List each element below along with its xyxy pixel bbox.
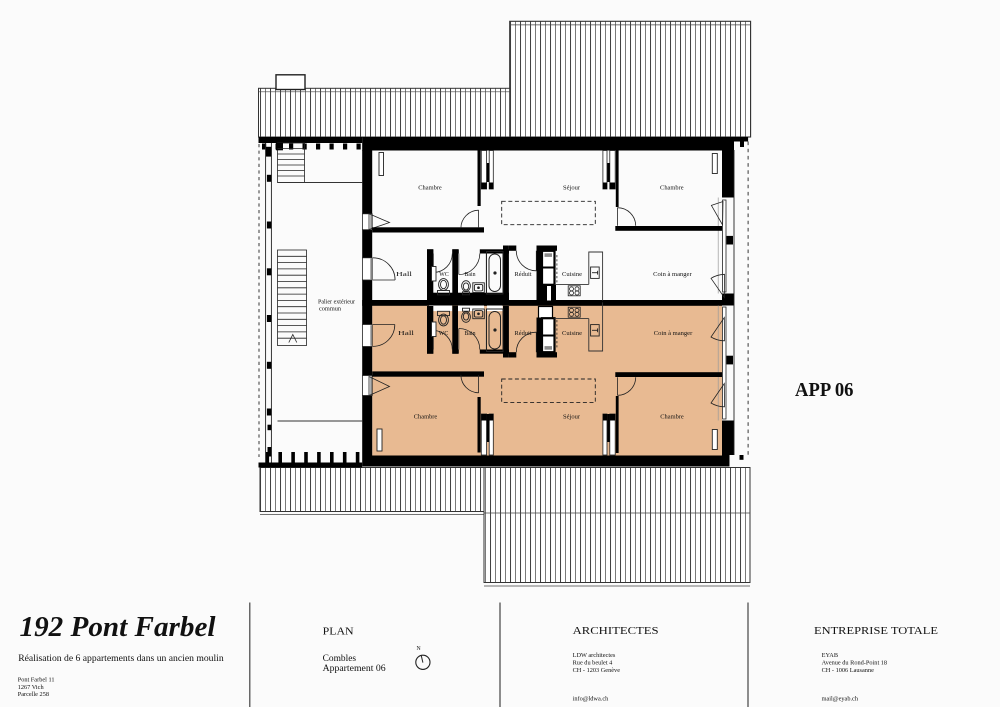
svg-text:CH - 1203 Genève: CH - 1203 Genève (573, 667, 621, 674)
svg-text:Réalisation de 6 appartements: Réalisation de 6 appartements dans un an… (18, 653, 224, 664)
svg-text:Réduit: Réduit (515, 271, 532, 278)
svg-text:LDW architectes: LDW architectes (573, 652, 616, 659)
svg-text:WC: WC (439, 330, 449, 337)
svg-text:Rue du beulet 4: Rue du beulet 4 (573, 660, 614, 667)
svg-text:ENTREPRISE TOTALE: ENTREPRISE TOTALE (814, 626, 938, 637)
svg-text:192 Pont Farbel: 192 Pont Farbel (20, 612, 216, 643)
svg-text:Séjour: Séjour (563, 414, 581, 421)
svg-text:Chambre: Chambre (660, 185, 684, 192)
svg-text:WC: WC (439, 271, 449, 278)
svg-text:Bain: Bain (465, 271, 477, 278)
svg-text:Coin à manger: Coin à manger (653, 271, 692, 278)
svg-text:Séjour: Séjour (563, 185, 581, 192)
svg-text:Appartement 06: Appartement 06 (323, 663, 387, 673)
svg-text:EYAB: EYAB (822, 652, 838, 659)
svg-text:Chambre: Chambre (418, 185, 442, 192)
svg-text:info@ldwa.ch: info@ldwa.ch (573, 696, 610, 703)
svg-text:Coin à manger: Coin à manger (654, 330, 693, 337)
svg-text:1267 Vich: 1267 Vich (18, 684, 45, 691)
svg-text:Hall: Hall (398, 330, 414, 337)
svg-text:Cuisine: Cuisine (562, 330, 582, 337)
svg-text:Parcelle 258: Parcelle 258 (18, 691, 49, 698)
svg-text:APP 06: APP 06 (795, 379, 854, 401)
svg-text:ARCHITECTES: ARCHITECTES (573, 626, 659, 637)
svg-text:Chambre: Chambre (414, 414, 438, 421)
svg-text:Pont Farbel 11: Pont Farbel 11 (18, 677, 55, 684)
svg-text:CH - 1006 Lausanne: CH - 1006 Lausanne (822, 667, 874, 674)
svg-text:Combles: Combles (323, 653, 357, 663)
svg-text:Hall: Hall (396, 271, 412, 278)
svg-text:Chambre: Chambre (660, 414, 684, 421)
svg-text:Bain: Bain (465, 330, 477, 337)
svg-text:mail@eyab.ch: mail@eyab.ch (822, 696, 859, 703)
svg-text:Réduit: Réduit (515, 330, 532, 337)
svg-text:Avenue du Rond-Point 18: Avenue du Rond-Point 18 (822, 660, 887, 667)
svg-text:commun: commun (319, 306, 341, 313)
svg-text:Cuisine: Cuisine (562, 271, 582, 278)
svg-text:Palier extérieur: Palier extérieur (318, 299, 355, 306)
svg-text:PLAN: PLAN (323, 627, 354, 638)
